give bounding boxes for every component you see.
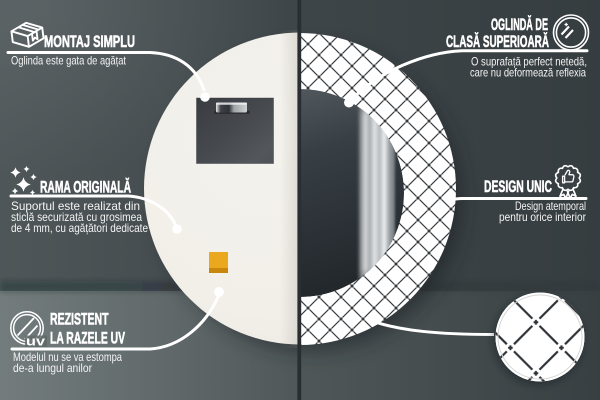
svg-text:pentru orice interior: pentru orice interior: [499, 210, 586, 224]
svg-text:LA RAZELE UV: LA RAZELE UV: [50, 329, 125, 347]
svg-text:uv: uv: [26, 335, 45, 349]
svg-text:REZISTENT: REZISTENT: [50, 310, 109, 328]
svg-text:DESIGN UNIC: DESIGN UNIC: [484, 178, 552, 196]
svg-text:Oglinda este gata de agățat: Oglinda este gata de agățat: [11, 53, 127, 67]
svg-text:care nu deformează reflexia: care nu deformează reflexia: [470, 65, 586, 79]
svg-text:OGLINDĂ DE: OGLINDĂ DE: [491, 15, 548, 34]
svg-text:de 4 mm, cu agățători dedicate: de 4 mm, cu agățători dedicate: [11, 221, 148, 235]
svg-text:de-a lungul anilor: de-a lungul anilor: [13, 361, 92, 375]
svg-text:CLASĂ SUPERIOARĂ: CLASĂ SUPERIOARĂ: [446, 32, 549, 51]
svg-text:MONTAJ SIMPLU: MONTAJ SIMPLU: [44, 33, 135, 51]
svg-text:RAMA ORIGINALĂ: RAMA ORIGINALĂ: [40, 178, 131, 197]
